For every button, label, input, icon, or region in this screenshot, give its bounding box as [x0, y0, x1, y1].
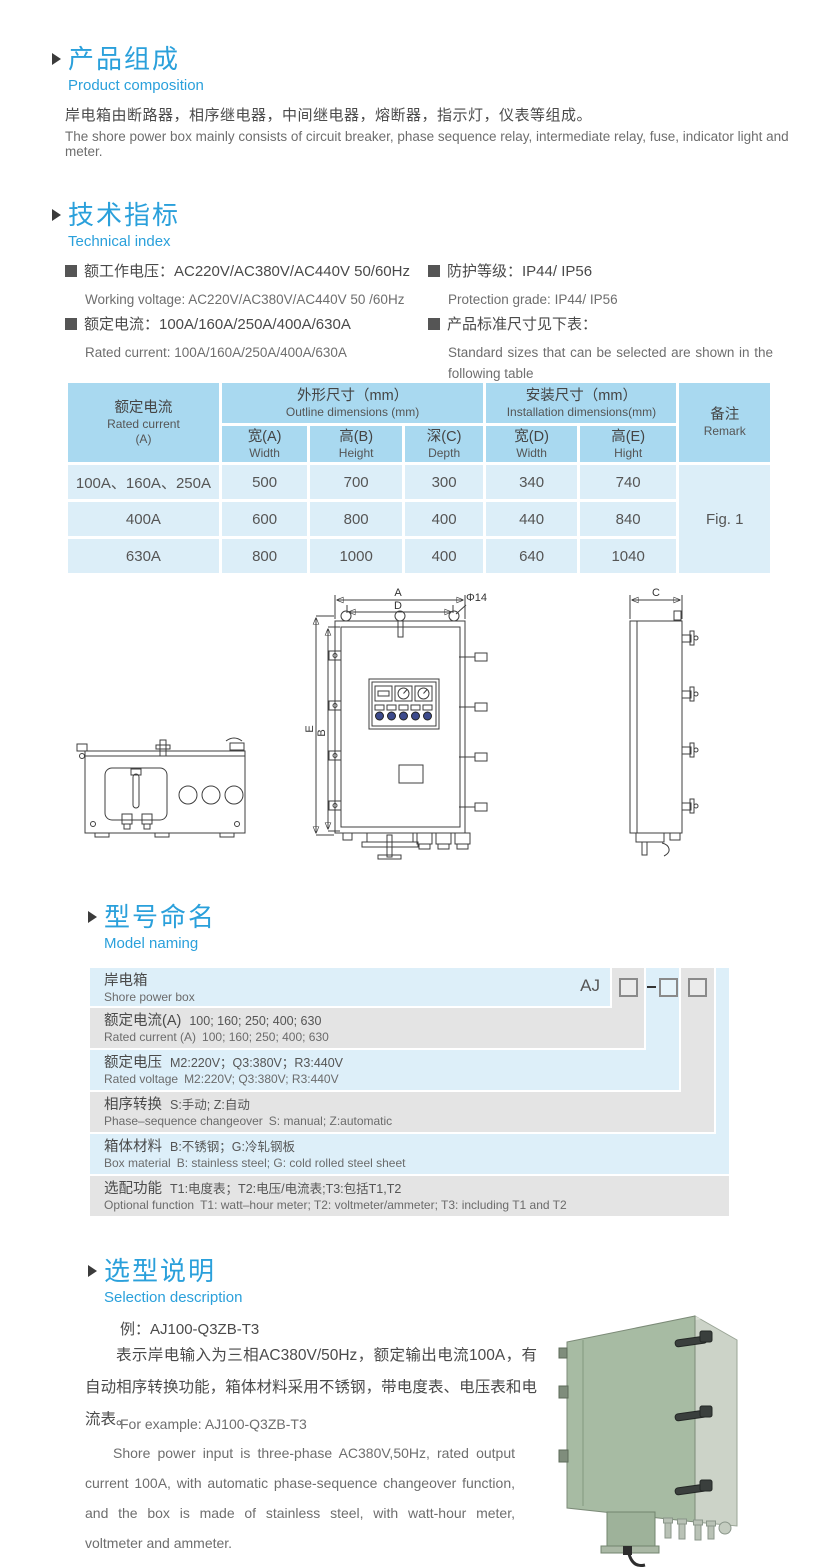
product-paragraph-en: The shore power box mainly consists of c… — [65, 129, 810, 159]
catalog-page: { "colors": { "accent_blue": "#2aa0db", … — [0, 0, 830, 1568]
spec-zh-text: 防护等级：IP44/ IP56 — [447, 260, 592, 281]
remark-cell: Fig. 1 — [679, 465, 770, 573]
model-naming-table: 岸电箱 Shore power box AJ 额定电流(A)100; 160; … — [90, 968, 750, 1216]
dimensions-table: 额定电流 Rated current (A) 外形尺寸（mm） Outline … — [65, 380, 773, 576]
table-row: 400A 600 800 400 440 840 — [68, 502, 770, 536]
spec-rated-current: 额定电流：100A/160A/250A/400A/630A Rated curr… — [65, 313, 425, 363]
example-model-zh: 例：AJ100-Q3ZB-T3 — [120, 1318, 259, 1339]
meter-panel-drawing — [369, 679, 439, 729]
section-title-zh: 产品组成 — [68, 44, 204, 74]
bullet-square-icon — [65, 318, 77, 330]
model-prefix: AJ — [580, 976, 600, 996]
naming-row-box-material: 箱体材料B:不锈钢；G:冷轧钢板 Box materialB: stainles… — [90, 1134, 729, 1174]
dim-label-b: B — [316, 729, 328, 736]
side-view-drawing: C — [630, 587, 698, 856]
example-model-en: For example: AJ100-Q3ZB-T3 — [120, 1416, 307, 1432]
col-header-outline: 外形尺寸（mm） Outline dimensions (mm) — [222, 383, 483, 423]
dim-label-d: D — [394, 600, 402, 612]
section-title-zh: 型号命名 — [104, 902, 216, 932]
product-paragraph-zh: 岸电箱由断路器，相序继电器，中间继电器，熔断器，指示灯，仪表等组成。 — [65, 104, 795, 125]
spec-en-text: Working voltage: AC220V/AC380V/AC440V 50… — [85, 289, 425, 310]
section-arrow-icon — [52, 53, 61, 65]
model-naming-heading: 型号命名 Model naming — [88, 902, 216, 952]
section-arrow-icon — [88, 1265, 97, 1277]
section-title-en: Product composition — [68, 77, 204, 94]
naming-row-shore-power-box: 岸电箱 Shore power box AJ — [90, 968, 610, 1006]
sub-header-width-d: 宽(D)Width — [486, 426, 577, 462]
bullet-square-icon — [428, 318, 440, 330]
naming-row-rated-current: 额定电流(A)100; 160; 250; 400; 630 Rated cur… — [90, 1008, 644, 1048]
spec-en-text: Standard sizes that can be selected are … — [448, 342, 773, 384]
naming-row-rated-voltage: 额定电压M2:220V；Q3:380V；R3:440V Rated voltag… — [90, 1050, 679, 1090]
sub-header-width-a: 宽(A)Width — [222, 426, 307, 462]
code-box-icon — [688, 978, 707, 997]
section-title-zh: 选型说明 — [104, 1256, 242, 1286]
spec-en-text: Protection grade: IP44/ IP56 — [448, 289, 788, 310]
bottom-view-drawing — [77, 738, 245, 837]
naming-row-optional-function: 选配功能T1:电度表；T2:电压/电流表;T3:包括T1,T2 Optional… — [90, 1176, 729, 1216]
dim-label-c: C — [652, 587, 660, 599]
naming-row-phase-changeover: 相序转换S:手动; Z:自动 Phase–sequence changeover… — [90, 1092, 714, 1132]
spec-protection-grade: 防护等级：IP44/ IP56 Protection grade: IP44/ … — [428, 260, 788, 310]
section-title-zh: 技术指标 — [68, 200, 180, 230]
sub-header-depth-c: 深(C)Depth — [405, 426, 483, 462]
spec-zh-text: 产品标准尺寸见下表： — [447, 313, 597, 334]
section-title-en: Selection description — [104, 1289, 242, 1306]
hole-diameter-label: Φ14 — [466, 592, 487, 604]
spec-zh-text: 额工作电压：AC220V/AC380V/AC440V 50/60Hz — [84, 260, 410, 281]
code-column-voltage — [646, 968, 679, 1050]
section-arrow-icon — [88, 911, 97, 923]
table-row: 100A、160A、250A 500 700 300 340 740 Fig. … — [68, 465, 770, 499]
description-en: Shore power input is three-phase AC380V,… — [85, 1438, 515, 1558]
spec-zh-text: 额定电流：100A/160A/250A/400A/630A — [84, 313, 351, 334]
col-header-remark: 备注 Remark — [679, 383, 770, 462]
spec-en-text: Rated current: 100A/160A/250A/400A/630A — [85, 342, 425, 363]
selection-description-heading: 选型说明 Selection description — [88, 1256, 242, 1306]
product-composition-heading: 产品组成 Product composition — [52, 44, 204, 94]
col-header-installation: 安装尺寸（mm） Installation dimensions(mm) — [486, 383, 676, 423]
sub-header-height-b: 高(B)Height — [310, 426, 402, 462]
code-column-option — [716, 968, 729, 1134]
code-column-suffix — [681, 968, 714, 1092]
technical-index-heading: 技术指标 Technical index — [52, 200, 180, 250]
bullet-square-icon — [65, 265, 77, 277]
col-header-rated-current: 额定电流 Rated current (A) — [68, 383, 219, 462]
code-box-icon — [619, 978, 638, 997]
front-view-drawing: A D Φ14 E B — [304, 587, 487, 859]
bullet-square-icon — [428, 265, 440, 277]
section-title-en: Technical index — [68, 233, 180, 250]
dash-icon — [647, 986, 656, 988]
product-photo — [545, 1300, 795, 1568]
spec-standard-sizes: 产品标准尺寸见下表： Standard sizes that can be se… — [428, 313, 773, 384]
dim-label-e: E — [304, 725, 316, 732]
code-box-icon — [659, 978, 678, 997]
technical-drawing: A D Φ14 E B — [70, 583, 770, 878]
code-column-current — [612, 968, 644, 1008]
sub-header-height-e: 高(E)Hight — [580, 426, 677, 462]
section-arrow-icon — [52, 209, 61, 221]
spec-working-voltage: 额工作电压：AC220V/AC380V/AC440V 50/60Hz Worki… — [65, 260, 425, 310]
dim-label-a: A — [394, 587, 402, 599]
section-title-en: Model naming — [104, 935, 216, 952]
table-row: 630A 800 1000 400 640 1040 — [68, 539, 770, 573]
